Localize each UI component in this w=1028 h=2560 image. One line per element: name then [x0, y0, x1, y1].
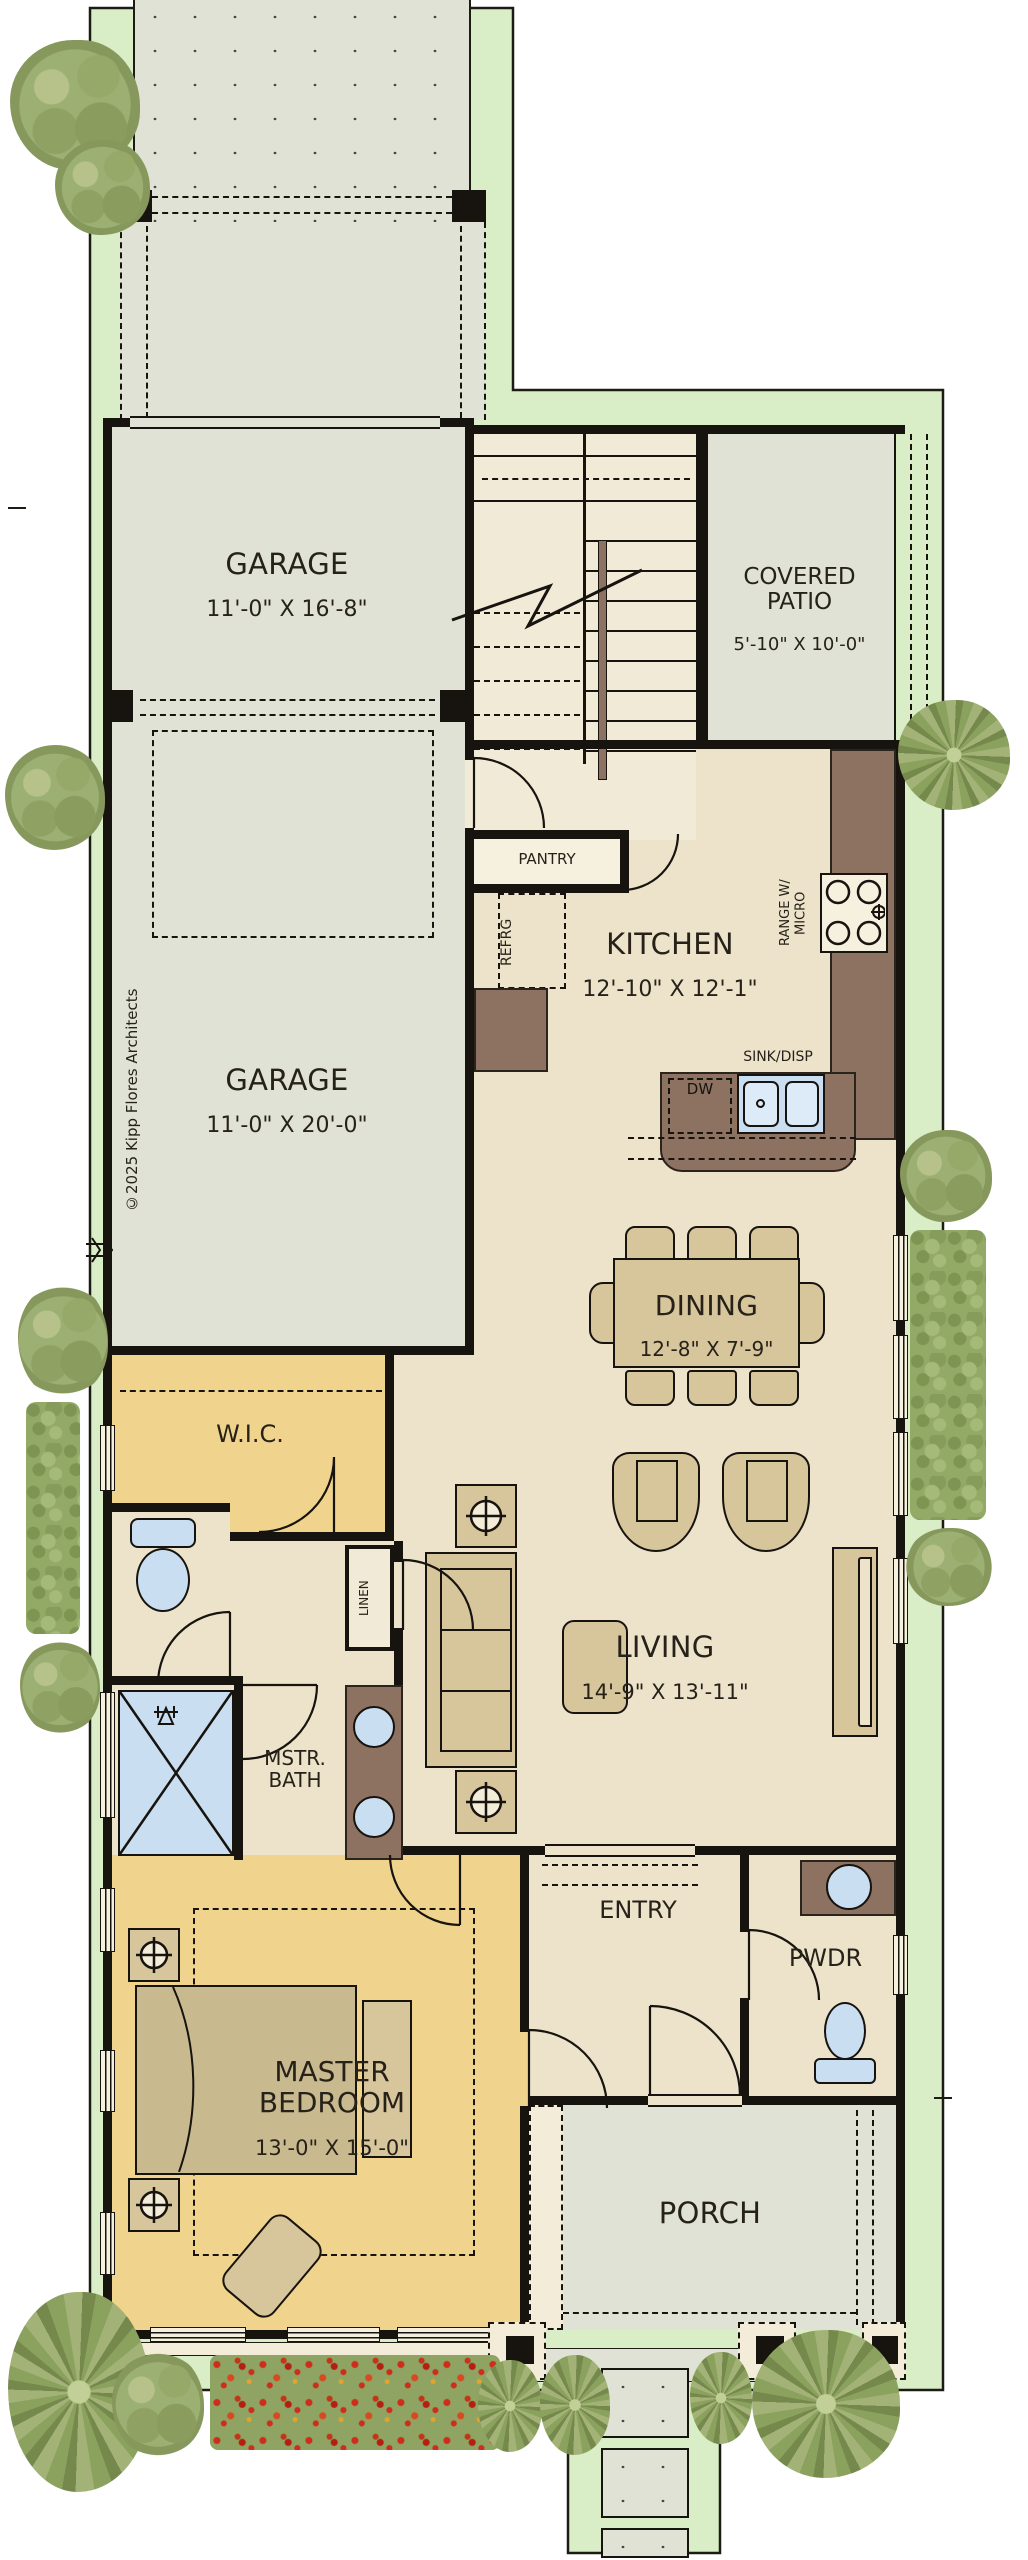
kitchen-name: KITCHEN: [540, 929, 800, 960]
hedge: [26, 1402, 80, 1634]
patio-roof-overhang: [910, 434, 912, 740]
garage-front-name: GARAGE: [137, 549, 437, 580]
porch-side-strip: [529, 2105, 563, 2330]
palm-tree: [478, 2360, 542, 2452]
door-swing: [650, 2006, 740, 2096]
palm-tree: [752, 2330, 900, 2478]
pwdr-toilet-bowl: [824, 2002, 866, 2060]
garage-door-post: [452, 190, 486, 222]
window: [893, 1235, 908, 1321]
master-bedroom-name: MASTER BEDROOM: [217, 2057, 447, 2117]
kitchen-sink: [737, 1074, 825, 1134]
tv: [858, 1557, 872, 1727]
tree: [898, 700, 1010, 810]
window: [893, 1335, 908, 1419]
window: [893, 1432, 908, 1516]
utility-meter-icon: [84, 1236, 118, 1266]
bush: [900, 1130, 992, 1222]
lamp-icon: [134, 2185, 174, 2225]
stair-tread-dashed: [482, 478, 690, 480]
shower: [118, 1690, 234, 1856]
paver: [601, 2368, 689, 2438]
stair-tread: [474, 455, 696, 457]
bush: [112, 2352, 204, 2457]
window: [397, 2327, 490, 2342]
garage-mid-door-dashed: [140, 714, 435, 716]
garage-back-dims: 11'-0" X 20'-0": [137, 1114, 437, 1138]
garage-band: [112, 690, 465, 722]
porch-edge-dashed: [563, 2312, 856, 2314]
sink-label: SINK/DISP: [718, 1050, 838, 1065]
pwdr-sink: [826, 1864, 872, 1910]
bush: [20, 1640, 100, 1735]
mstr-bath-label: MSTR. BATH: [245, 1748, 345, 1791]
hedge: [910, 1230, 986, 1520]
living-name: LIVING: [570, 1632, 760, 1663]
cushion-line: [442, 1690, 510, 1692]
garage-back-label: GARAGE 11'-0" X 20'-0": [137, 1048, 437, 1155]
lamp-icon: [134, 1935, 174, 1975]
garage-apron: [120, 222, 486, 420]
dining-chair: [625, 1226, 675, 1262]
door-swing: [158, 1612, 230, 1684]
garage-car-space: [152, 730, 434, 938]
covered-patio-label: COVERED PATIO 5'-10" X 10'-0": [712, 548, 887, 672]
vanity-sink: [353, 1706, 395, 1748]
covered-patio-name: COVERED PATIO: [725, 565, 875, 615]
window: [100, 2212, 115, 2275]
master-bedroom-label: MASTER BEDROOM 13'-0" X 15'-0": [187, 2040, 477, 2177]
door-swing: [259, 1457, 334, 1532]
wic-bottom-wall: [230, 1532, 394, 1541]
dining-name: DINING: [615, 1291, 798, 1321]
dining-chair: [749, 1226, 799, 1262]
kitchen-label: KITCHEN 12'-10" X 12'-1": [540, 912, 800, 1019]
apron-dashed-line: [146, 226, 148, 418]
porch-label: PORCH: [610, 2198, 810, 2229]
porch-roof-dashed: [872, 2110, 874, 2325]
chair-seat: [746, 1460, 788, 1522]
flower-bed: [210, 2355, 500, 2450]
island-overhang-dashed: [628, 1137, 856, 1139]
door-swing: [622, 834, 678, 890]
garage-front-label: GARAGE 11'-0" X 16'-8": [137, 532, 437, 639]
garage-door-opening: [130, 416, 440, 429]
paver: [601, 2528, 689, 2558]
paver: [601, 2448, 689, 2518]
shower-glass-x: [120, 1692, 232, 1854]
floor-patch: [394, 1346, 403, 1541]
tree: [55, 140, 150, 235]
copyright: ©2025 Kipp Flores Architects: [124, 935, 152, 1265]
covered-patio-dims: 5'-10" X 10'-0": [712, 635, 887, 654]
pwdr-door-opening: [740, 1930, 749, 2000]
window: [150, 2327, 246, 2342]
garage-back-wall: [103, 1346, 474, 1355]
door-swing: [474, 758, 544, 828]
garage-stair-door-opening: [465, 758, 474, 830]
window: [100, 2050, 115, 2112]
living-dims: 14'-9" X 13'-11": [570, 1681, 760, 1704]
range: [820, 873, 888, 953]
kitchen-cabinet: [474, 988, 548, 1072]
garage-door-dashed: [152, 196, 452, 198]
window: [100, 1425, 115, 1491]
driveway: [133, 0, 471, 222]
island-overhang-dashed: [628, 1158, 856, 1160]
pwdr-toilet-tank: [814, 2058, 876, 2084]
tree: [5, 745, 105, 850]
entry-label: ENTRY: [558, 1898, 718, 1924]
dining-table: DINING 12'-8" X 7'-9": [613, 1258, 800, 1368]
entry-passage-opening: [545, 1844, 695, 1857]
floor-plan: REFRG RANGE W/ MICRO SINK/DISP DW DINING…: [0, 0, 1028, 2560]
palm-tree: [540, 2355, 610, 2455]
stair-tread: [474, 500, 696, 502]
media-console: [832, 1547, 878, 1737]
linen-label: LINEN: [358, 1556, 382, 1640]
kitchen-dims: 12'-10" X 12'-1": [540, 978, 800, 1002]
hall-living-door-opening: [394, 1560, 403, 1630]
entry-ceiling-dashed: [542, 1864, 698, 1866]
range-burners: [822, 875, 885, 950]
dining-dims: 12'-8" X 7'-9": [615, 1339, 798, 1361]
entry-ceiling-dashed: [542, 1884, 698, 1886]
garage-front-dims: 11'-0" X 16'-8": [137, 598, 437, 622]
master-window-sill: [130, 2342, 510, 2356]
toilet-bowl: [136, 1548, 190, 1612]
lamp-icon: [464, 1494, 508, 1538]
dishwasher-label: DW: [668, 1081, 732, 1097]
dining-label: DINING 12'-8" X 7'-9": [615, 1274, 798, 1378]
dining-chair: [797, 1282, 825, 1344]
patio-roof-overhang: [926, 434, 928, 740]
door-swing: [529, 2030, 607, 2108]
wic-label: W.I.C.: [150, 1422, 350, 1448]
porch-roof-dashed: [856, 2110, 858, 2325]
front-wall-stair-patio: [465, 425, 905, 434]
dining-chair: [687, 1226, 737, 1262]
garage-back-name: GARAGE: [137, 1065, 437, 1096]
bedroom-door-opening: [520, 2030, 529, 2108]
toilet-tank: [130, 1518, 196, 1548]
patio-right-edge: [894, 427, 896, 740]
kitchen-top-wall: [465, 740, 905, 749]
pwdr-label: PWDR: [753, 1946, 898, 1972]
garage-mid-door-dashed: [140, 699, 435, 701]
palm-tree: [690, 2352, 752, 2444]
pantry-bottom-wall: [465, 884, 629, 893]
window: [287, 2327, 380, 2342]
stair-bottom-wall: [465, 830, 629, 839]
door-swing: [403, 1560, 473, 1630]
wic-right-wall: [385, 1346, 394, 1541]
window: [100, 1692, 115, 1818]
master-bedroom-dims: 13'-0" X 15'-0": [187, 2137, 477, 2160]
chair-seat: [636, 1460, 678, 1522]
stair-tread-dashed: [474, 714, 580, 716]
apron-dashed-line: [460, 226, 462, 418]
stair-break-line: [452, 528, 712, 648]
stair-tread-dashed: [474, 680, 580, 682]
refrigerator-label: REFRG: [500, 900, 522, 984]
wic-ceiling-dashed: [120, 1390, 382, 1392]
sink-drain: [756, 1099, 765, 1108]
pantry-label: PANTRY: [476, 851, 618, 867]
lamp-icon: [464, 1780, 508, 1824]
water-closet-top-wall: [112, 1503, 230, 1512]
shower-right-wall: [234, 1685, 243, 1860]
right-exterior-wall: [896, 740, 905, 2340]
door-swing: [390, 1855, 460, 1925]
window: [100, 1888, 115, 1952]
patio-left-wall: [696, 434, 708, 740]
sink-basin: [785, 1081, 819, 1127]
bush: [905, 1528, 993, 1606]
living-label: LIVING 14'-9" X 13'-11": [570, 1615, 760, 1721]
bush: [18, 1283, 108, 1398]
garage-door-dashed: [152, 212, 452, 214]
vanity-sink: [353, 1796, 395, 1838]
